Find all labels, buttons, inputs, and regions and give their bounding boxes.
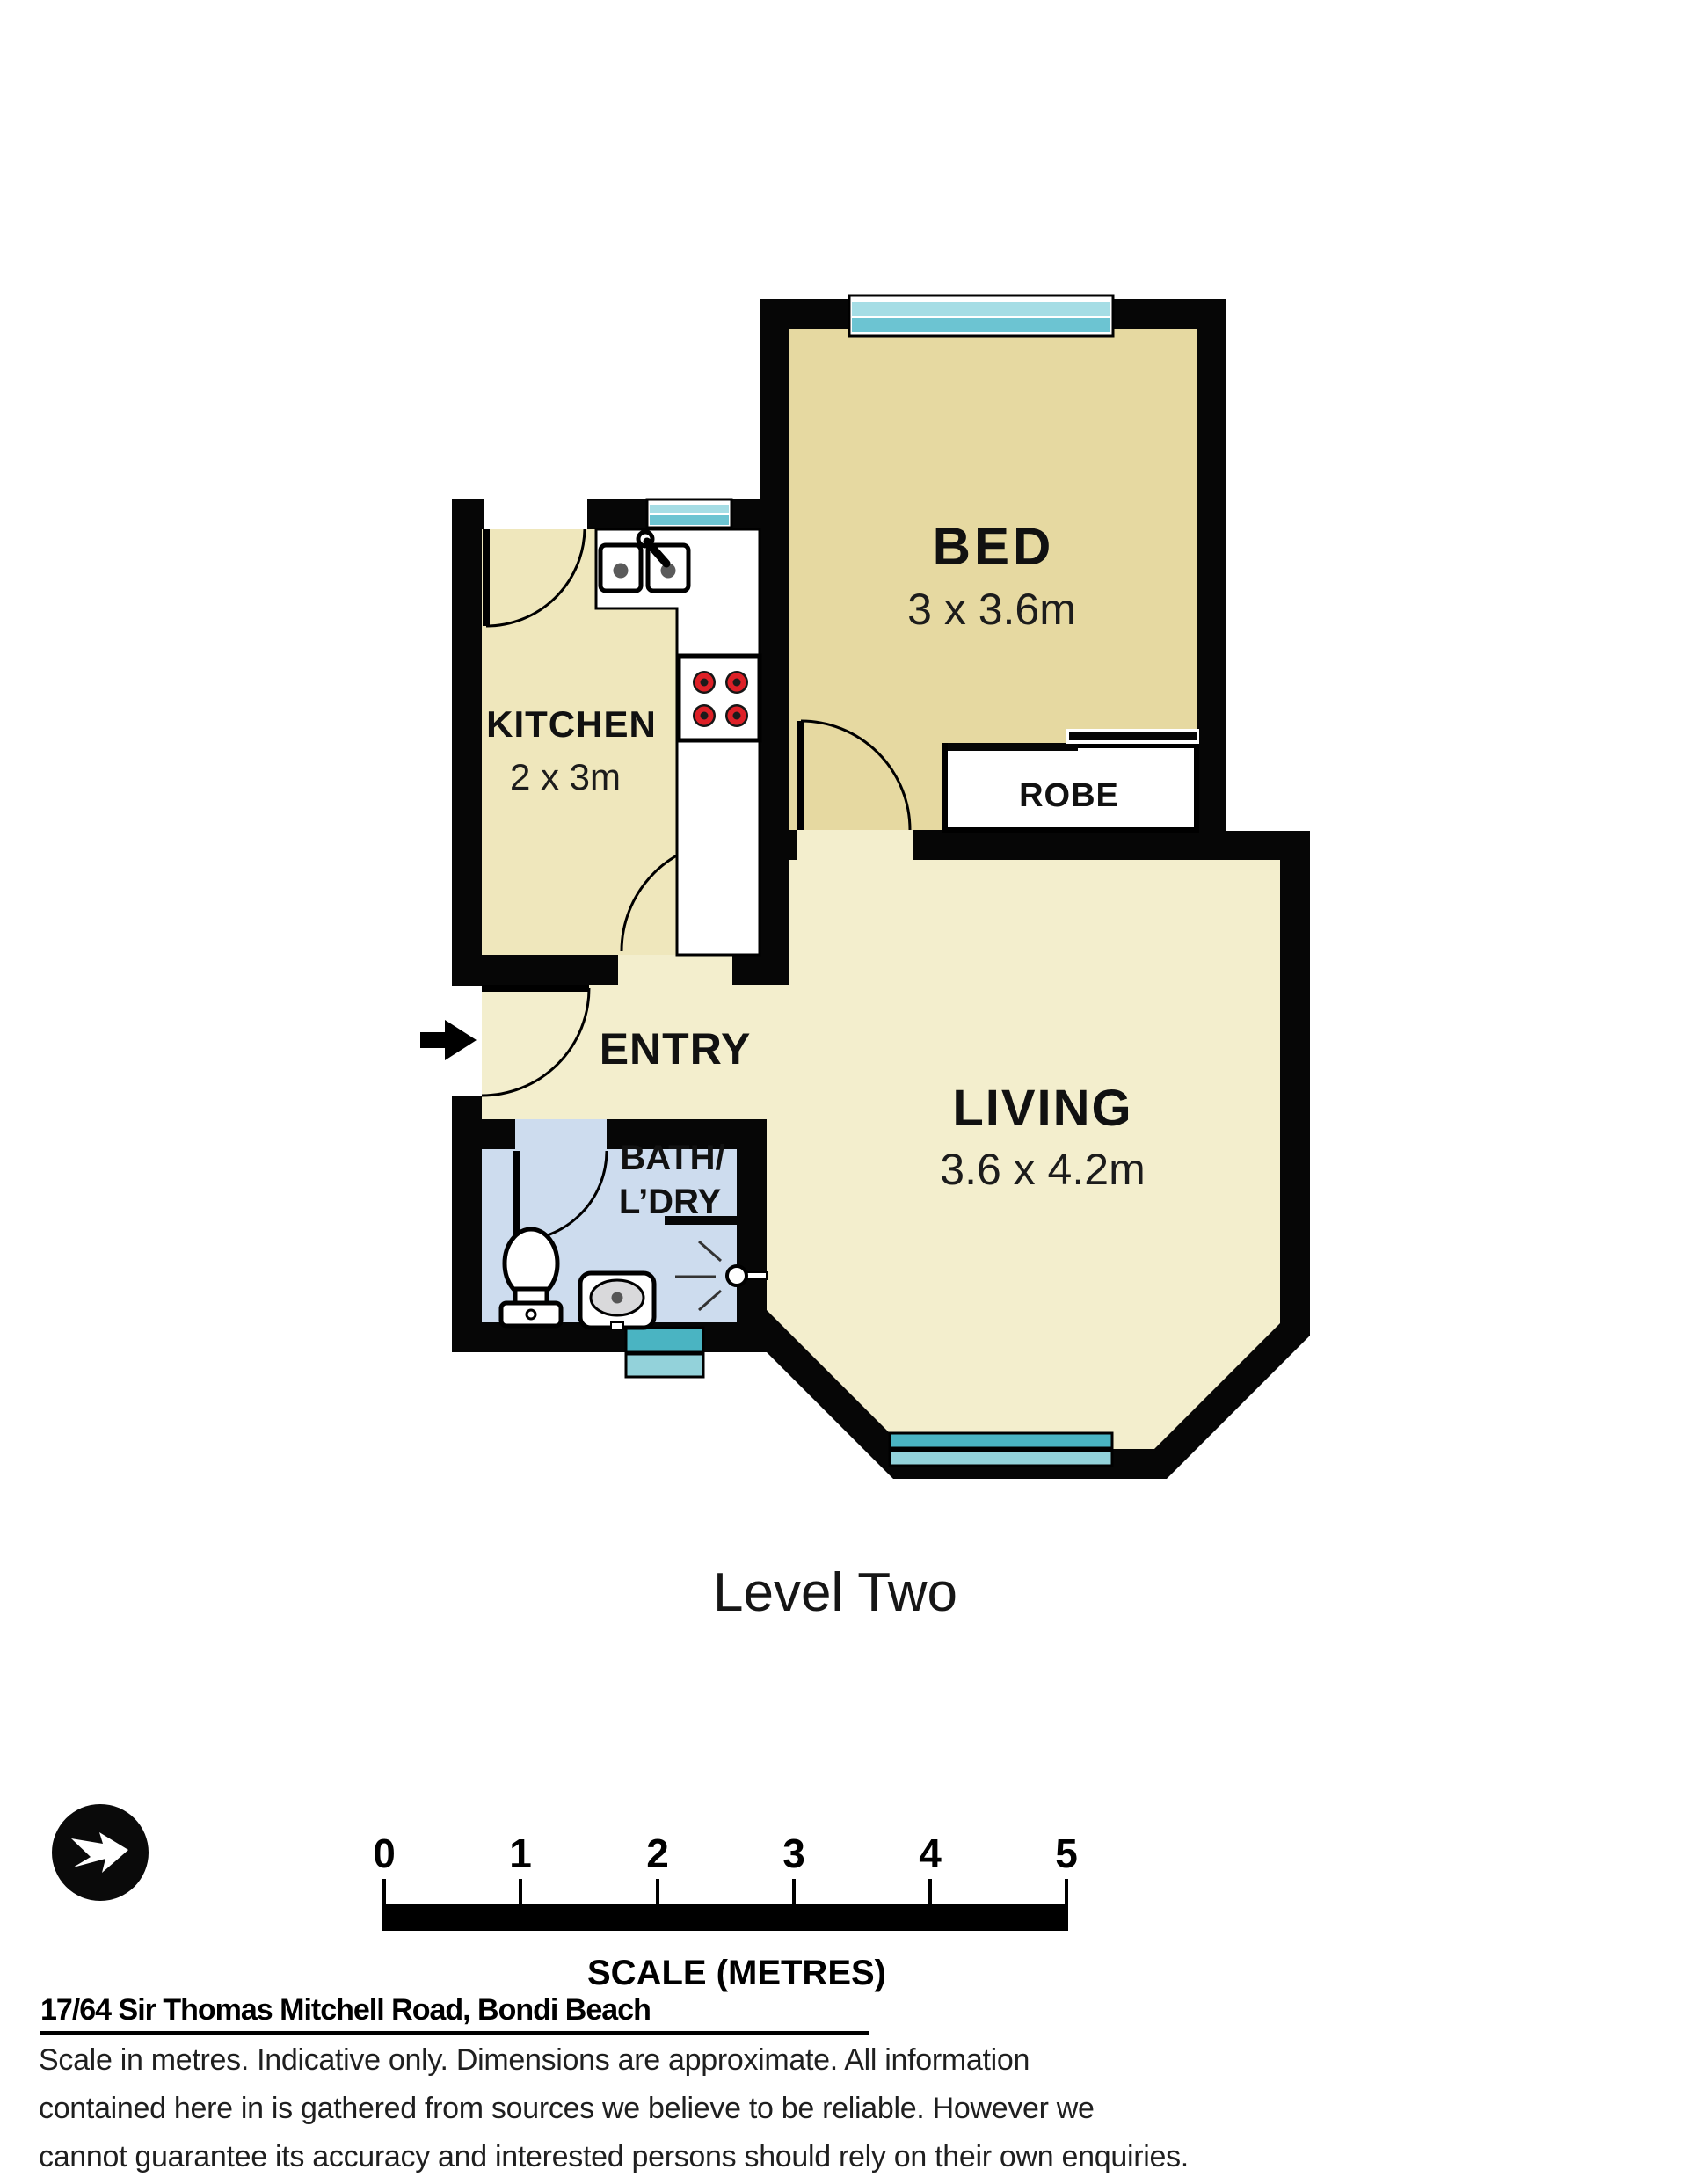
floorplan-canvas: BED 3 x 3.6m KITCHEN 2 x 3m ROBE ENTRY L… <box>0 0 1688 2184</box>
north-arrow-icon <box>52 1804 149 1901</box>
living-dims: 3.6 x 4.2m <box>940 1145 1145 1194</box>
level-label: Level Two <box>713 1562 957 1623</box>
scale-tick-5: 5 <box>1055 1831 1078 1876</box>
kitchen-dims: 2 x 3m <box>510 756 621 797</box>
toilet <box>501 1229 561 1326</box>
bath-label-line2: L’DRY <box>619 1183 722 1221</box>
floorplan-page: BED 3 x 3.6m KITCHEN 2 x 3m ROBE ENTRY L… <box>0 0 1688 2184</box>
footer-divider <box>40 2031 869 2035</box>
scale-tick-2: 2 <box>646 1831 669 1876</box>
bed-window <box>849 295 1113 336</box>
scale-tick-1: 1 <box>509 1831 532 1876</box>
disclaimer-line-1: Scale in metres. Indicative only. Dimens… <box>39 2043 1030 2077</box>
living-bay-window <box>890 1433 1112 1466</box>
scale-bar: 0 1 2 3 4 5 SCALE (METRES) <box>373 1831 1078 1992</box>
bed-label: BED <box>933 517 1055 576</box>
kitchen-label: KITCHEN <box>486 703 657 745</box>
kitchen-stove <box>679 656 760 740</box>
address-line: 17/64 Sir Thomas Mitchell Road, Bondi Be… <box>40 1993 651 2027</box>
disclaimer-line-3: cannot guarantee its accuracy and intere… <box>39 2140 1189 2173</box>
scale-tick-0: 0 <box>373 1831 396 1876</box>
scale-tick-3: 3 <box>782 1831 805 1876</box>
basin <box>580 1273 654 1329</box>
scale-caption: SCALE (METRES) <box>587 1954 886 1992</box>
robe-label: ROBE <box>1019 777 1119 814</box>
bath-label-line1: BATH/ <box>620 1139 724 1177</box>
entry-label: ENTRY <box>600 1024 752 1074</box>
scale-tick-4: 4 <box>919 1831 942 1876</box>
kitchen-window <box>647 499 731 528</box>
bed-dims: 3 x 3.6m <box>907 585 1076 634</box>
disclaimer-line-2: contained here in is gathered from sourc… <box>39 2092 1095 2125</box>
bath-window <box>626 1328 703 1377</box>
living-label: LIVING <box>952 1080 1132 1137</box>
